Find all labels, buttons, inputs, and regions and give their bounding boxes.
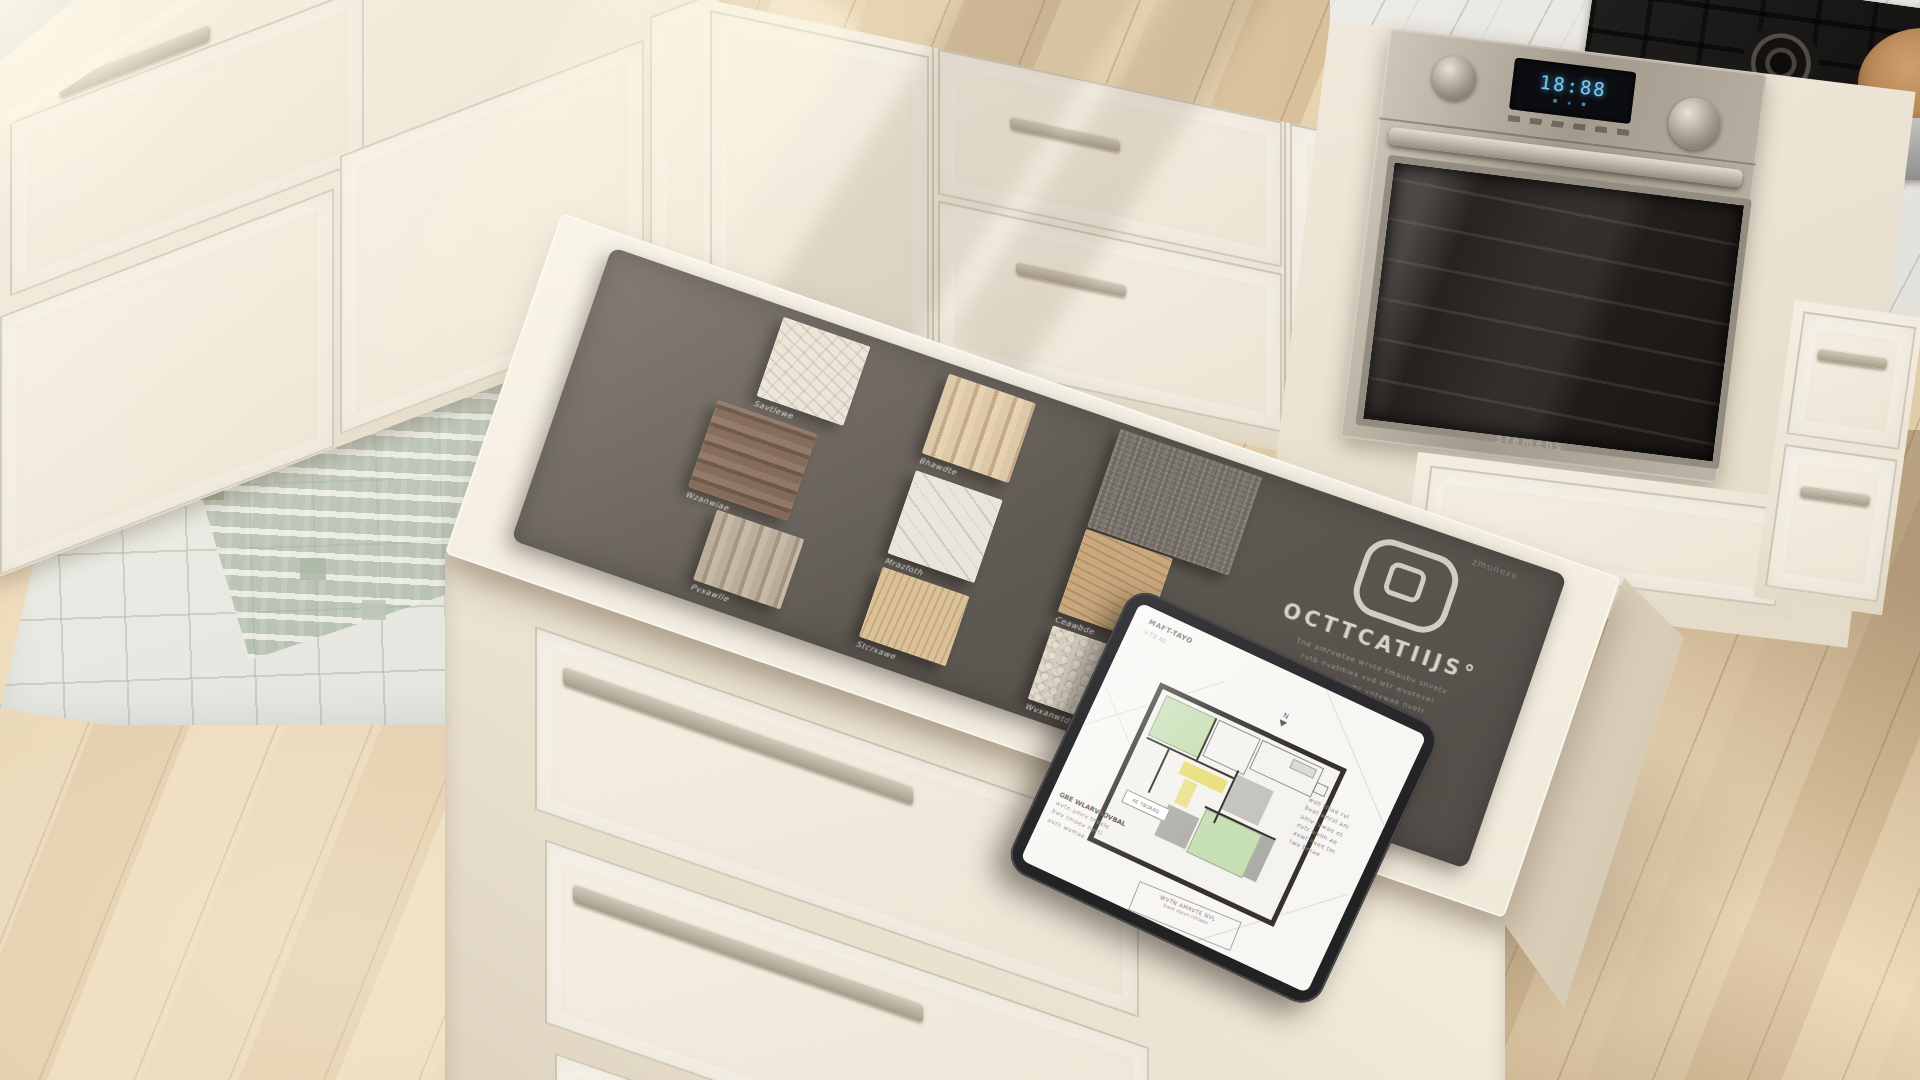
accent-tile (362, 600, 386, 620)
oven-knob-right (1666, 95, 1724, 153)
oven-display-time: 18:88 (1539, 71, 1608, 101)
cabinet-drawer-front (1765, 444, 1898, 602)
oven-display: 18:88 ▪ ▴ ▪ (1509, 57, 1636, 123)
oven-knob-left (1430, 54, 1479, 103)
kitchen-scene: 18:88 ▪ ▴ ▪ sremens Savtlewe Bhaw (0, 0, 1920, 1080)
cabinet-drawer-front (1786, 311, 1916, 450)
brand-logo-inner-icon (1381, 560, 1428, 605)
board-corner-note: zmunexe (1471, 557, 1520, 582)
wall-oven: 18:88 ▪ ▴ ▪ sremens (1340, 28, 1767, 483)
window-light (0, 0, 230, 210)
accent-tile (300, 558, 326, 580)
